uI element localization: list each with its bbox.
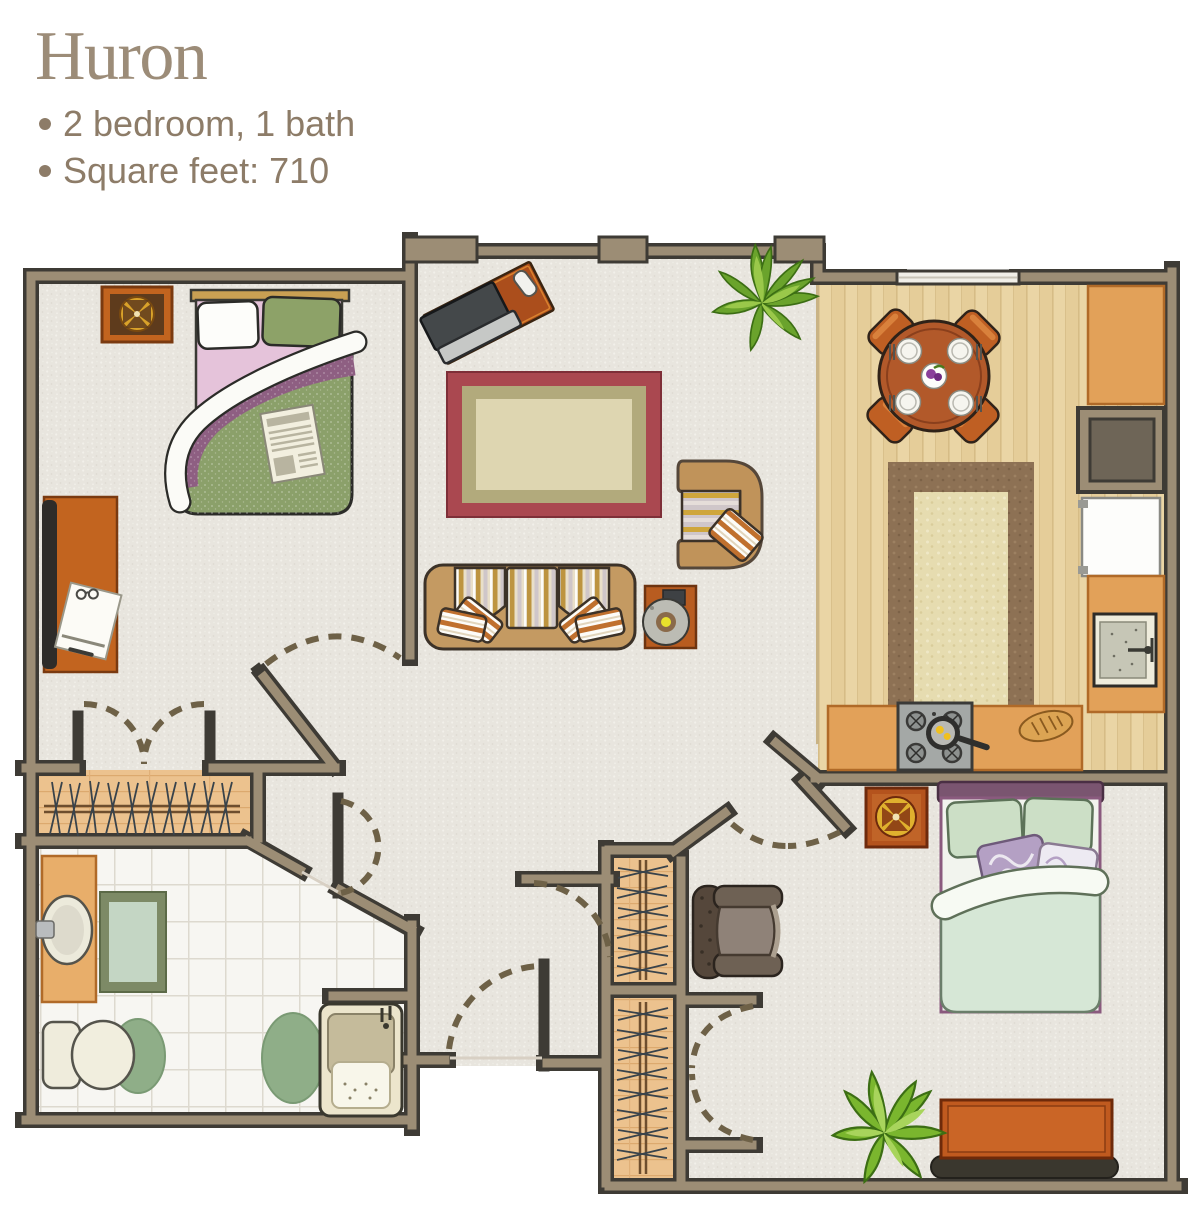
svg-text:Huron: Huron (35, 18, 207, 95)
svg-text:2 bedroom, 1 bath: 2 bedroom, 1 bath (63, 103, 355, 144)
svg-text:Square feet: 710: Square feet: 710 (63, 150, 329, 191)
